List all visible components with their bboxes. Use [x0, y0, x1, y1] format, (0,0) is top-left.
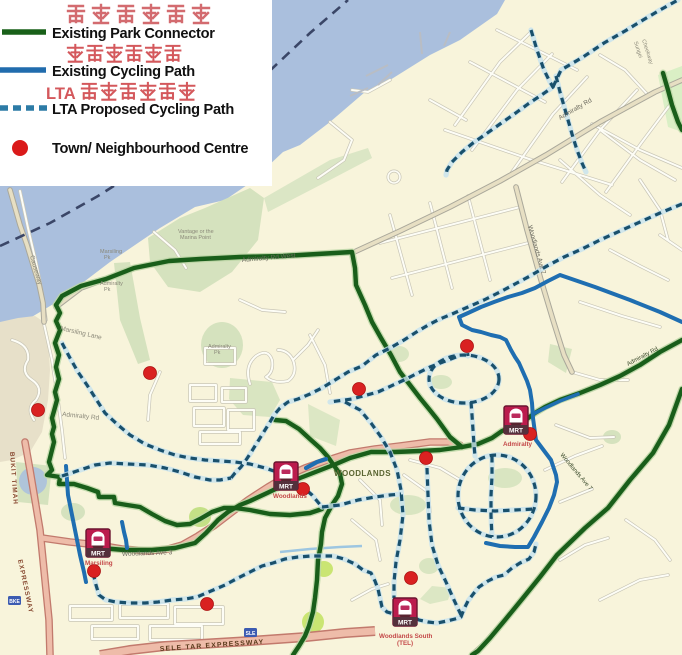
- svg-text:Town/ Neighbourhood Centre: Town/ Neighbourhood Centre: [52, 141, 248, 157]
- svg-text:Marsiling: Marsiling: [85, 560, 113, 567]
- svg-text:Existing Park Connector: Existing Park Connector: [52, 26, 215, 42]
- svg-text:WOODLANDS: WOODLANDS: [334, 469, 391, 478]
- svg-text:Pk: Pk: [214, 350, 221, 356]
- svg-text:Woodlands South: Woodlands South: [379, 633, 433, 640]
- svg-text:Existing Cycling Path: Existing Cycling Path: [52, 64, 195, 80]
- svg-text:Admiralty: Admiralty: [503, 441, 533, 448]
- svg-text:LTA Proposed Cycling Path: LTA Proposed Cycling Path: [52, 102, 234, 118]
- svg-text:SLE: SLE: [246, 631, 256, 637]
- svg-text:(TEL): (TEL): [397, 640, 413, 647]
- svg-text:Pk: Pk: [104, 287, 111, 293]
- svg-text:BKE: BKE: [9, 599, 20, 605]
- svg-text:LTA: LTA: [46, 85, 76, 103]
- svg-text:Woodlands: Woodlands: [273, 493, 307, 500]
- svg-text:Marina Point: Marina Point: [180, 235, 211, 241]
- svg-text:Pk: Pk: [104, 255, 111, 261]
